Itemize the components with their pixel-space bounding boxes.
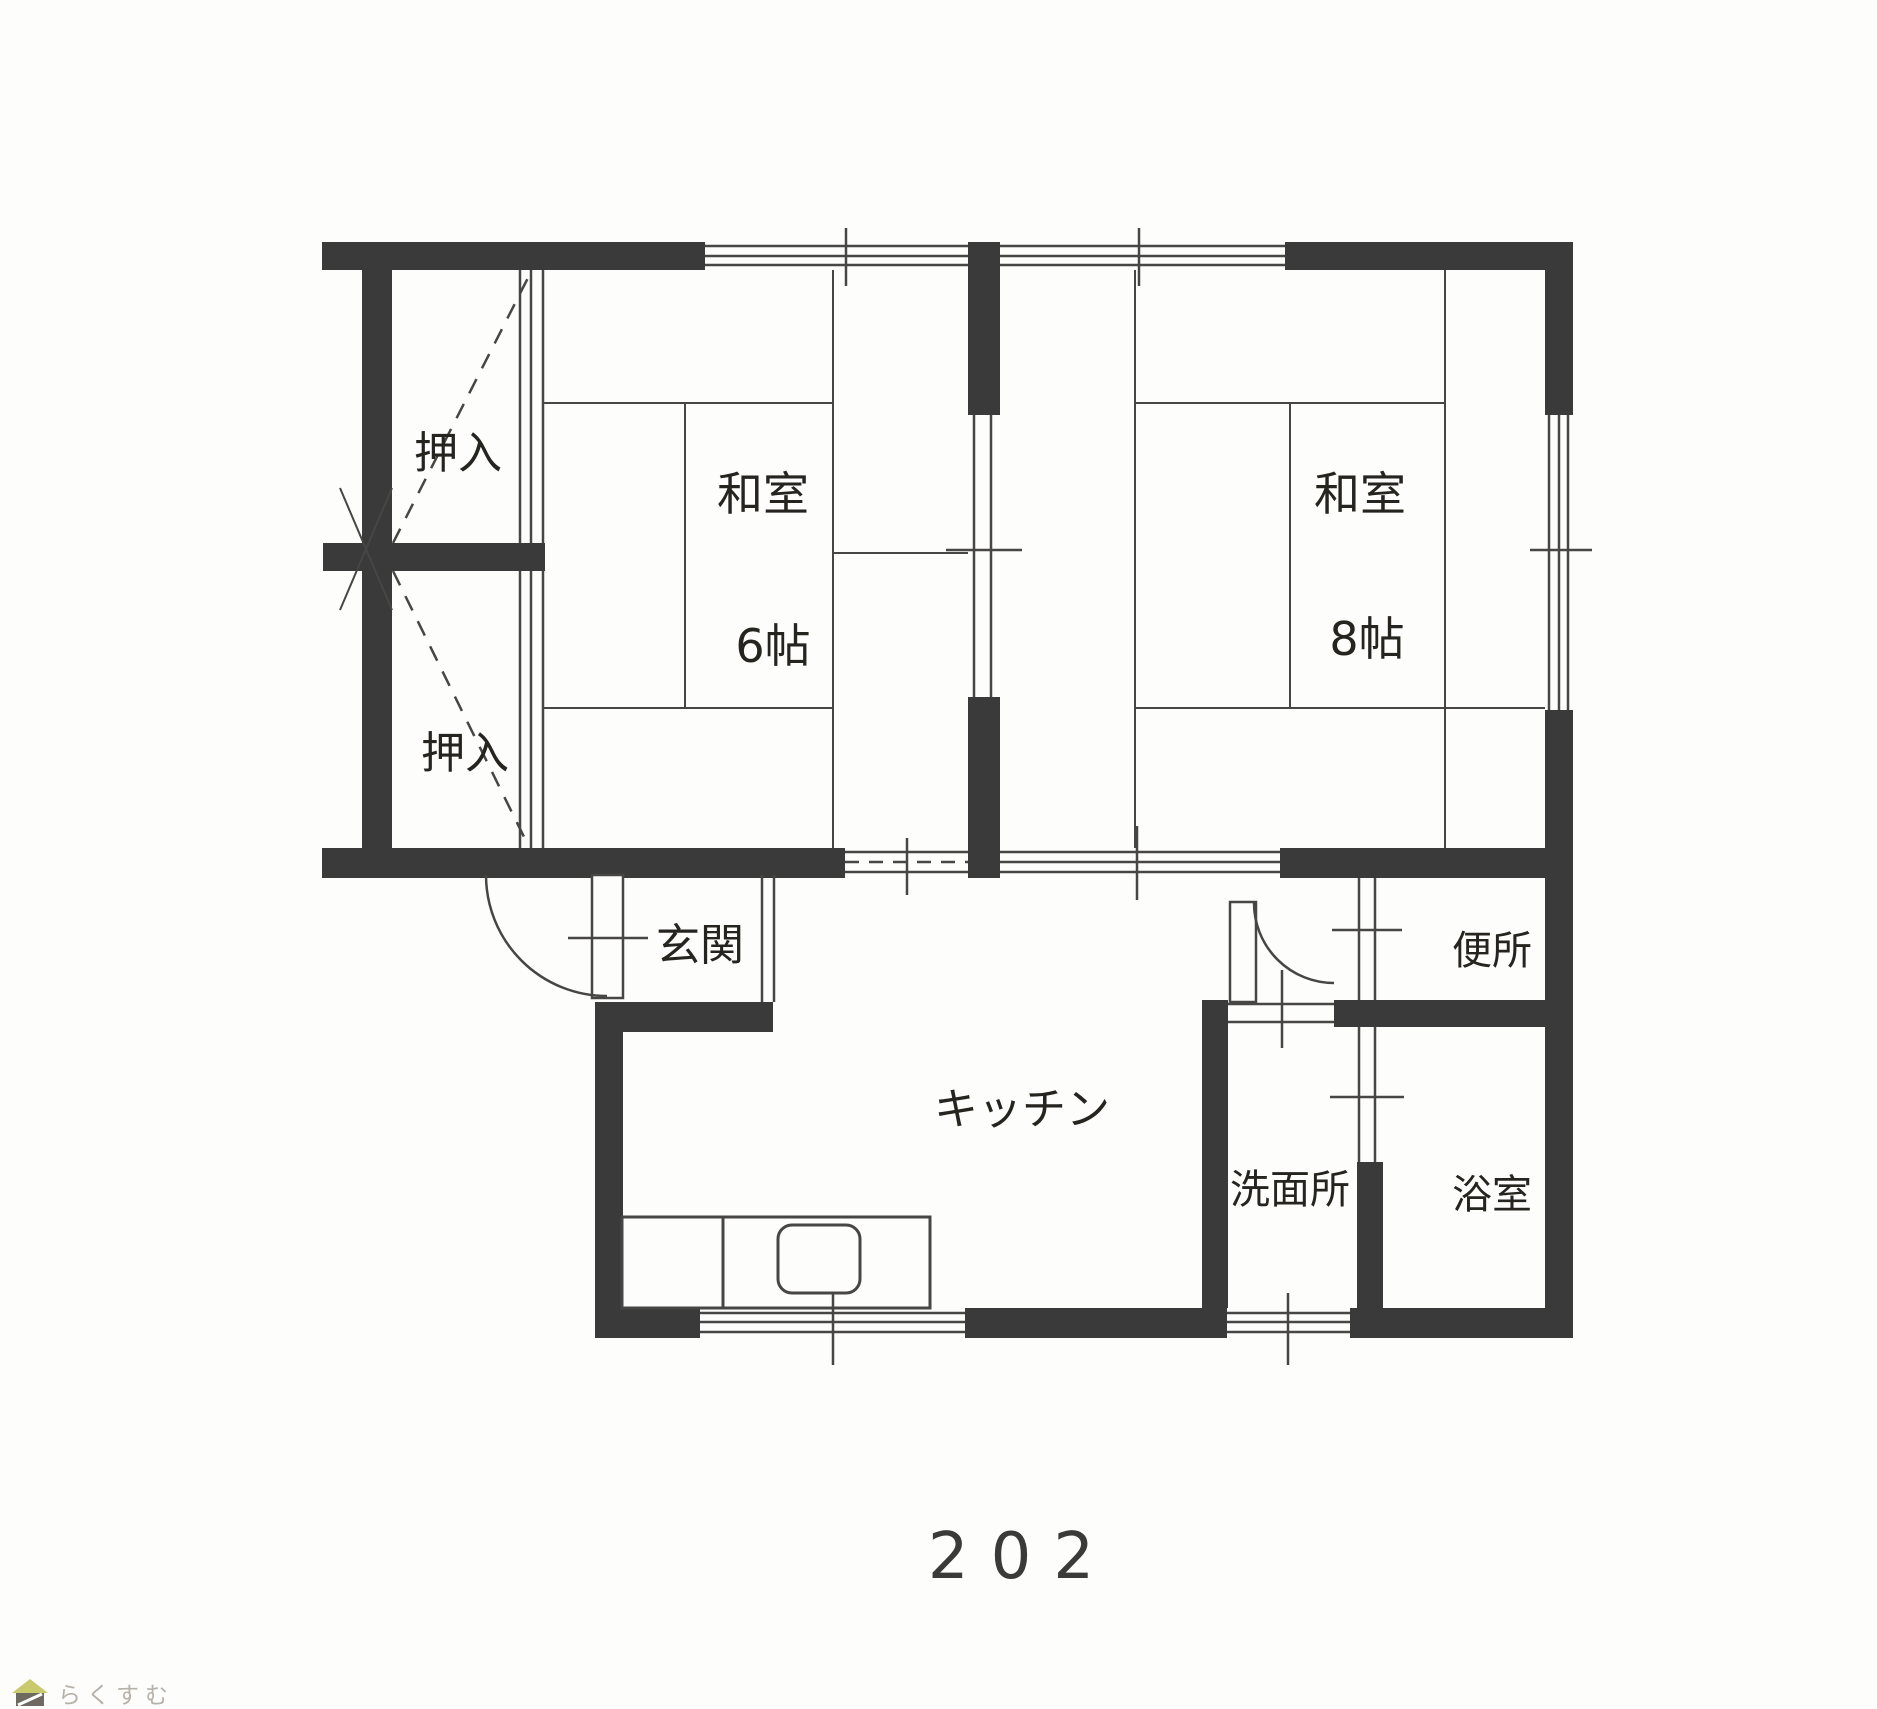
room-size-washitsu8: 8帖	[1329, 612, 1404, 666]
tatami-lines	[543, 270, 1545, 848]
toilet-door-leaf	[1230, 902, 1256, 1002]
room-size-washitsu6: 6帖	[735, 619, 810, 673]
floor-plan-drawing: 押入 押入 和室 6帖 和室 8帖 玄関 キッチン 便所 洗面所 浴室 202 …	[0, 0, 1877, 1709]
room-label-senmenjo: 洗面所	[1230, 1167, 1350, 1213]
fusuma-between-rooms	[946, 415, 1022, 697]
wall-washroom-left	[1202, 1000, 1228, 1308]
room-label-yokushitsu: 浴室	[1452, 1172, 1532, 1218]
window-right-wall	[1530, 415, 1592, 710]
wall-right-upper	[1545, 270, 1573, 415]
closet-sliding-doors-upper	[520, 270, 543, 543]
bath-partition-door	[1330, 1027, 1404, 1162]
sliding-door-room8-to-kitchen	[1000, 826, 1280, 900]
wall-top-right	[1285, 242, 1573, 270]
watermark-house-icon	[12, 1679, 48, 1706]
room-label-washitsu8: 和室	[1314, 467, 1406, 521]
entrance-door	[486, 875, 648, 998]
watermark-brand: らくすむ	[58, 1683, 174, 1709]
wall-bath-bottom	[1350, 1308, 1573, 1338]
room-label-washitsu6: 和室	[717, 467, 809, 521]
wall-kitchen-bottom-left	[595, 1308, 700, 1338]
window-top-right	[1000, 228, 1285, 286]
entrance-door-swing-arc	[486, 875, 607, 996]
watermark: らくすむ	[12, 1679, 174, 1709]
wall-bath-partition-lower	[1357, 1162, 1383, 1308]
wall-closet-divider	[323, 543, 545, 571]
tatami-room6	[543, 270, 968, 848]
window-kitchen	[700, 1293, 965, 1365]
window-top-left	[705, 228, 968, 286]
shoji-genkan-to-room6	[845, 838, 968, 895]
wall-kitchen-bottom-mid	[965, 1308, 1227, 1338]
hinged-doors	[486, 875, 1334, 1002]
counter-outline	[622, 1217, 930, 1308]
sink	[778, 1225, 860, 1293]
walls	[322, 242, 1573, 1338]
room-label-oshiire-lower: 押入	[421, 728, 509, 779]
room-label-benjo: 便所	[1452, 928, 1532, 974]
floor-plan-page: 押入 押入 和室 6帖 和室 8帖 玄関 キッチン 便所 洗面所 浴室 202 …	[0, 0, 1877, 1709]
wall-genkan-bottom	[595, 1002, 773, 1032]
closet-sliding-doors-lower	[520, 571, 543, 848]
window-washroom	[1227, 1293, 1350, 1365]
kitchen-counter	[622, 1217, 930, 1308]
closet-diagonal-upper	[393, 272, 531, 543]
tatami-room8	[1135, 270, 1545, 848]
wall-fusuma-top	[968, 242, 1000, 415]
room-label-oshiire-upper: 押入	[414, 428, 502, 479]
wall-mid-horizontal-right	[1280, 848, 1573, 878]
entrance-door-leaf	[592, 875, 623, 998]
wall-kitchen-left	[595, 1032, 623, 1338]
wall-toilet-row-bottom	[1334, 1000, 1573, 1027]
room-label-genkan: 玄関	[656, 920, 744, 971]
wall-top-left	[322, 242, 705, 270]
toilet-door-swing-arc	[1254, 903, 1334, 983]
closet-diagonal-lower	[393, 571, 528, 845]
genkan-step-edge	[762, 875, 774, 1002]
wall-fusuma-bottom	[968, 697, 1000, 878]
unit-number: 202	[928, 1520, 1116, 1594]
wall-mid-horizontal-left	[322, 848, 845, 878]
toilet-partition	[1332, 878, 1402, 1000]
room-label-kitchen: キッチン	[934, 1084, 1110, 1135]
